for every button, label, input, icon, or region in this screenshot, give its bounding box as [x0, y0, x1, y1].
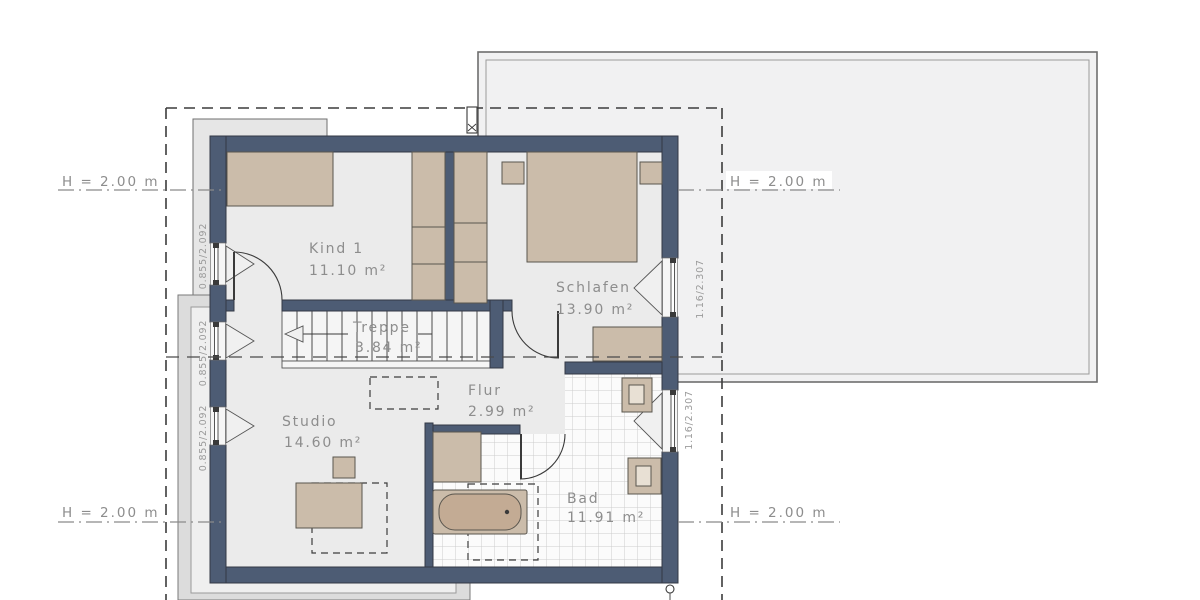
- room-label-treppe: Treppe: [352, 320, 411, 336]
- bed-kind1: [227, 152, 333, 206]
- room-area-studio: 14.60 m²: [284, 435, 362, 451]
- exterior-wall-right-1: [662, 136, 678, 258]
- window-left-1: [211, 243, 226, 285]
- win-dim-right-2: 1.16/2.307: [684, 390, 695, 450]
- bed-schlafen: [527, 152, 637, 262]
- wardrobe-schlafen: [454, 152, 487, 303]
- bathtub: [433, 490, 527, 534]
- wall-studio-bad: [425, 423, 433, 567]
- room-area-schlafen: 13.90 m²: [556, 302, 634, 318]
- wardrobe-kind1: [412, 152, 445, 300]
- wc-lower: [628, 458, 661, 494]
- nightstand-left: [502, 162, 524, 184]
- tub-drain-icon: [505, 510, 509, 514]
- door-jamb-schlafen: [503, 300, 512, 311]
- door-jamb-kind1: [226, 300, 234, 311]
- sideboard-schlafen: [593, 327, 662, 361]
- washbasin-cabinet: [433, 432, 481, 482]
- exterior-wall-top: [210, 136, 678, 152]
- exterior-wall-left-2: [210, 285, 226, 322]
- room-label-schlafen: Schlafen: [556, 280, 631, 296]
- exterior-wall-left-3: [210, 360, 226, 407]
- exterior-wall-right-3: [662, 452, 678, 583]
- window-right-1: [663, 258, 678, 317]
- downspout-top: [467, 107, 477, 133]
- room-label-studio: Studio: [282, 414, 337, 430]
- downspout-bottom: [666, 585, 674, 600]
- height-label-bottom-right: H = 2.00 m: [730, 505, 828, 521]
- window-left-2: [211, 322, 226, 360]
- height-label-bottom-left: H = 2.00 m: [62, 505, 160, 521]
- window-left-3: [211, 407, 226, 445]
- stairwell-wall-right: [490, 300, 503, 368]
- room-label-flur: Flur: [468, 383, 502, 399]
- exterior-wall-left-4: [210, 445, 226, 583]
- height-label-top-right: H = 2.00 m: [730, 174, 828, 190]
- height-label-top-left: H = 2.00 m: [62, 174, 160, 190]
- wc-upper: [622, 378, 652, 412]
- stair-lower-edge: [282, 361, 492, 368]
- floorplan-drawing: H = 2.00 m H = 2.00 m H = 2.00 m H = 2.0…: [0, 0, 1200, 600]
- win-dim-left-1: 0.855/2.092: [198, 223, 209, 289]
- room-area-kind1: 11.10 m²: [309, 263, 387, 279]
- nightstand-right: [640, 162, 662, 184]
- room-area-flur: 2.99 m²: [468, 404, 535, 420]
- exterior-wall-bottom: [210, 567, 678, 583]
- desk-studio: [296, 483, 362, 528]
- room-area-bad: 11.91 m²: [567, 510, 645, 526]
- win-dim-right-1: 1.16/2.307: [695, 259, 706, 319]
- window-right-2: [663, 390, 678, 452]
- room-label-kind1: Kind 1: [309, 241, 364, 257]
- room-label-bad: Bad: [567, 491, 599, 507]
- win-dim-left-2: 0.855/2.092: [198, 320, 209, 386]
- wall-schlafen-bad: [565, 362, 662, 374]
- chair-studio: [333, 457, 355, 478]
- room-area-treppe: 3.84 m²: [355, 340, 422, 356]
- exterior-wall-right-2: [662, 317, 678, 390]
- partition-kind1-schlafen: [445, 152, 454, 304]
- win-dim-left-3: 0.855/2.092: [198, 405, 209, 471]
- floorplan-canvas: H = 2.00 m H = 2.00 m H = 2.00 m H = 2.0…: [0, 0, 1200, 600]
